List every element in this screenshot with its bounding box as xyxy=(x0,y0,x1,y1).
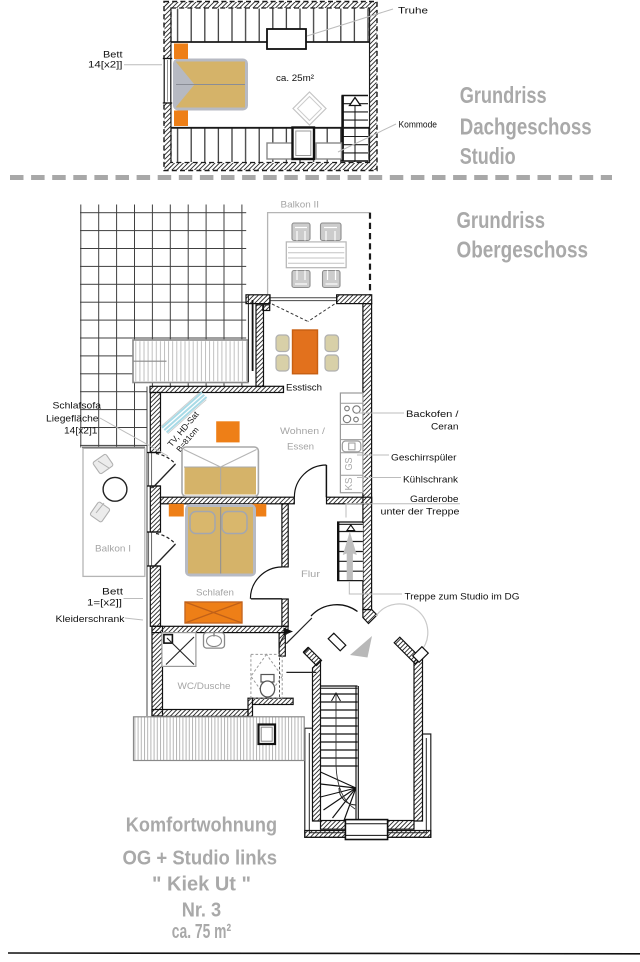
svg-text:Esstisch: Esstisch xyxy=(286,383,322,394)
svg-text:Studio: Studio xyxy=(460,143,516,169)
svg-text:Obergeschoss: Obergeschoss xyxy=(457,237,589,263)
svg-text:Nr. 3: Nr. 3 xyxy=(182,899,222,922)
svg-text:Schlafen: Schlafen xyxy=(196,588,234,599)
svg-text:ca. 75 m²: ca. 75 m² xyxy=(172,920,231,943)
svg-text:unter der Treppe: unter der Treppe xyxy=(381,507,460,518)
svg-text:OG + Studio links: OG + Studio links xyxy=(123,847,278,870)
svg-text:14[x2]1: 14[x2]1 xyxy=(64,426,98,437)
svg-text:Grundriss: Grundriss xyxy=(460,82,547,108)
svg-text:14[x2]]: 14[x2]] xyxy=(88,60,123,71)
svg-text:Geschirrspüler: Geschirrspüler xyxy=(391,453,457,464)
svg-text:Garderobe: Garderobe xyxy=(410,494,459,505)
svg-text:Balkon I: Balkon I xyxy=(95,544,131,555)
svg-text:ca. 25m²: ca. 25m² xyxy=(276,73,314,84)
svg-text:Dachgeschoss: Dachgeschoss xyxy=(460,114,592,140)
svg-text:Kommode: Kommode xyxy=(399,120,438,131)
svg-text:Backofen /: Backofen / xyxy=(406,409,459,420)
svg-text:Ceran: Ceran xyxy=(431,422,459,433)
svg-text:Kleiderschrank: Kleiderschrank xyxy=(56,614,125,625)
svg-text:WC/Dusche: WC/Dusche xyxy=(178,681,231,692)
svg-text:Flur: Flur xyxy=(301,569,320,580)
svg-text:Wohnen /: Wohnen / xyxy=(280,426,325,437)
svg-text:Komfortwohnung: Komfortwohnung xyxy=(126,814,277,837)
svg-text:GS: GS xyxy=(343,458,355,471)
svg-text:Grundriss: Grundriss xyxy=(457,207,546,233)
svg-text:Essen: Essen xyxy=(287,442,314,453)
svg-text:1=[x2]]: 1=[x2]] xyxy=(87,598,122,609)
svg-text:Truhe: Truhe xyxy=(398,6,428,17)
svg-text:" Kiek Ut ": " Kiek Ut " xyxy=(152,873,251,896)
svg-text:Balkon II: Balkon II xyxy=(281,200,320,211)
svg-text:Treppe zum Studio im DG: Treppe zum Studio im DG xyxy=(405,592,520,603)
svg-text:Kühlschrank: Kühlschrank xyxy=(403,475,458,486)
svg-text:Schlafsofa: Schlafsofa xyxy=(53,401,102,412)
svg-text:Liegefläche: Liegefläche xyxy=(46,414,99,425)
svg-text:KS: KS xyxy=(343,478,355,491)
svg-text:Bett: Bett xyxy=(102,587,123,598)
